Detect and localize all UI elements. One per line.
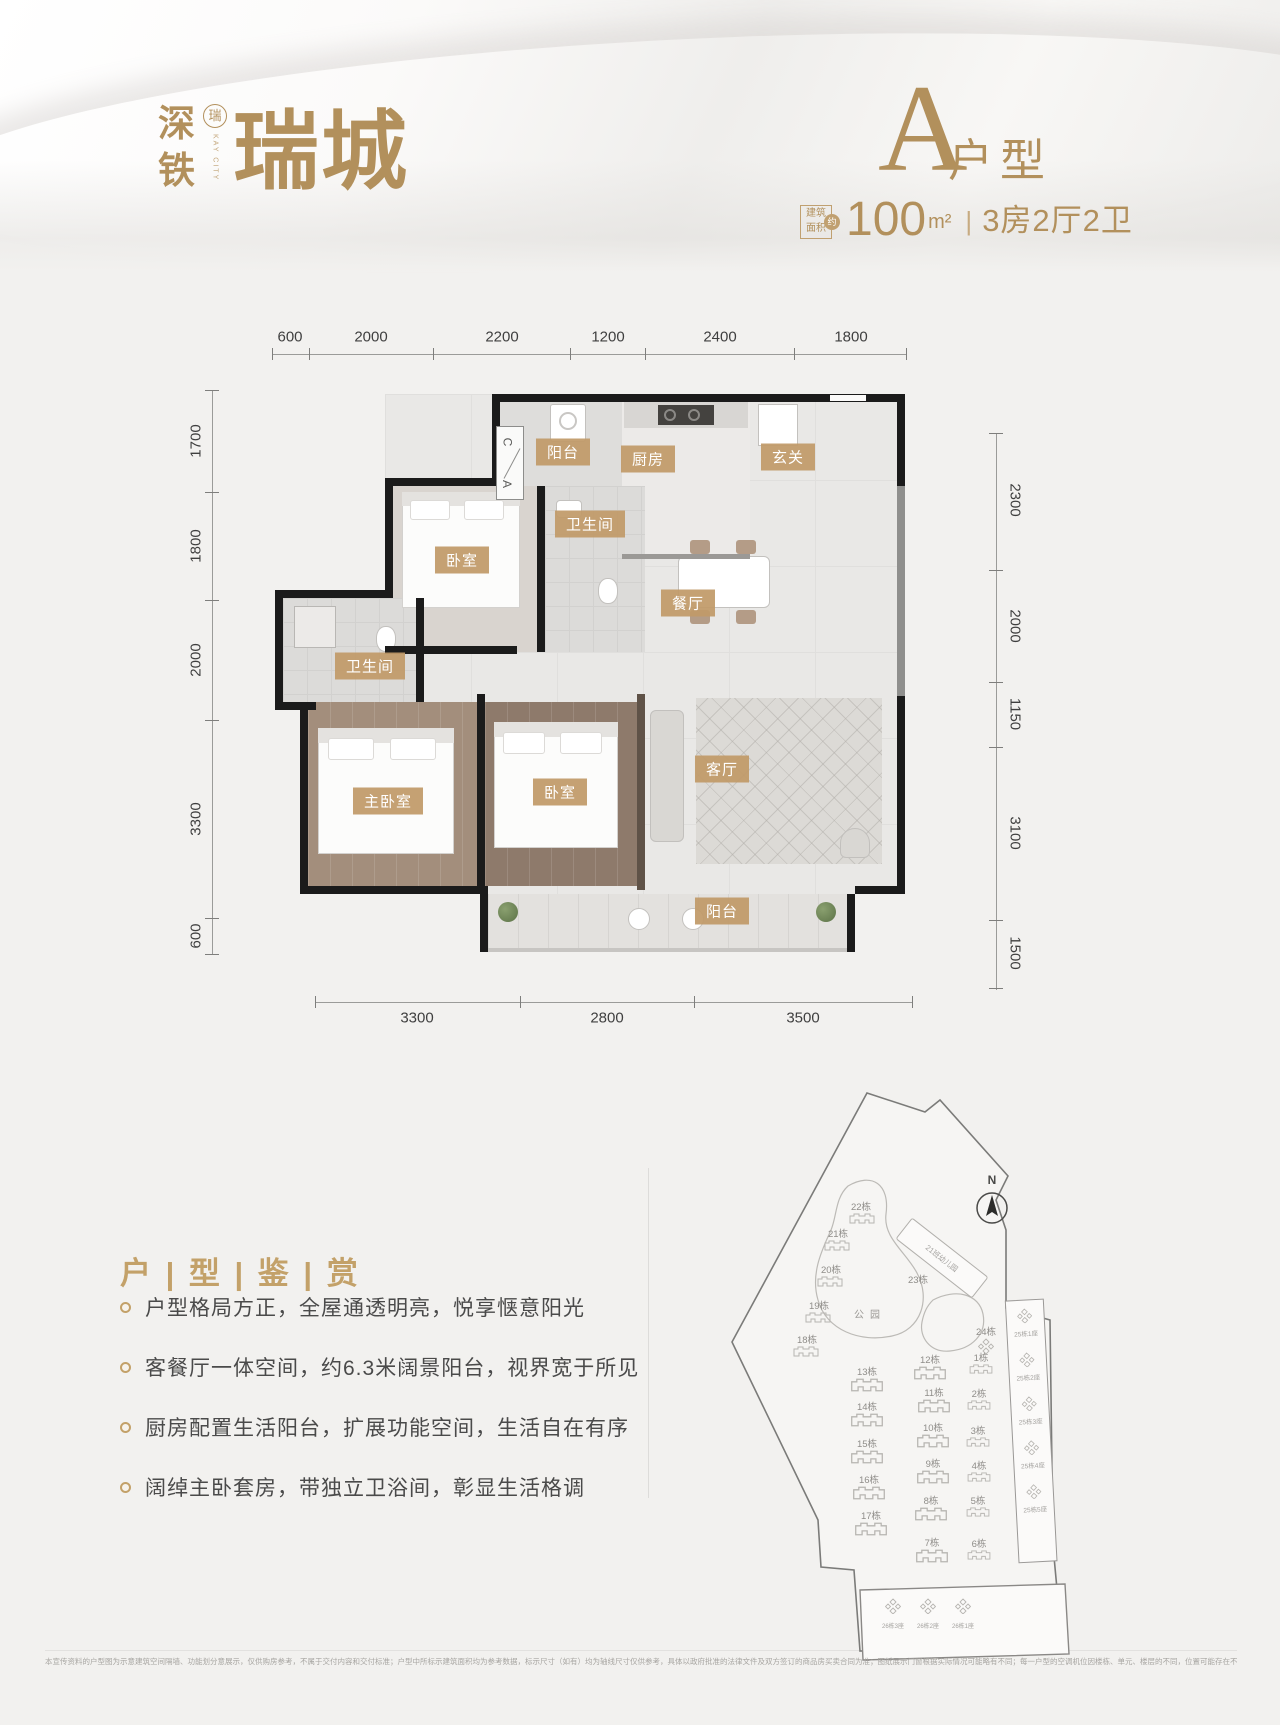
wall xyxy=(855,886,905,894)
wall-hatched xyxy=(897,486,905,696)
balcony-side-wall xyxy=(847,894,855,952)
tower-label: 2栋 xyxy=(972,1388,987,1400)
feature-text: 客餐厅一体空间，约6.3米阔景阳台，视界宽于所见 xyxy=(145,1352,639,1382)
dim-tick xyxy=(989,747,1003,748)
dim-tick xyxy=(989,988,1003,989)
dim-label: 1700 xyxy=(188,424,205,457)
dim-tick xyxy=(694,996,695,1008)
tower-label: 23栋 xyxy=(908,1274,929,1286)
room-label-kitchen: 厨房 xyxy=(621,446,675,473)
dim-tick xyxy=(989,920,1003,921)
wall xyxy=(897,696,905,886)
disclaimer-text: 本宣传资料的户型图为示意建筑空间隔墙、功能划分意展示，仅供购房参考，不属于交付内… xyxy=(45,1656,1237,1667)
pillow xyxy=(464,500,504,520)
bottom-balcony-floor xyxy=(488,894,847,948)
plant xyxy=(816,902,836,922)
logo-char-1: 深 xyxy=(158,100,195,147)
ac-shaft-marker: C A xyxy=(496,426,524,500)
dim-tick xyxy=(205,492,219,493)
logo-char-2: 铁 xyxy=(158,147,195,194)
chair xyxy=(690,540,710,554)
dim-line-left xyxy=(212,390,213,955)
entry-door-gap xyxy=(830,395,866,401)
wall xyxy=(300,702,308,894)
shaft-diagonal xyxy=(504,448,521,478)
wall xyxy=(477,694,485,890)
logo-seal-icon: 瑞 xyxy=(203,104,227,128)
tower-label: 3栋 xyxy=(971,1425,986,1437)
dim-tick xyxy=(205,720,219,721)
dim-label: 3300 xyxy=(400,1010,433,1027)
pillow xyxy=(390,738,436,760)
bullet-dot-icon xyxy=(120,1362,131,1373)
dim-label: 600 xyxy=(277,329,302,346)
brand-logo: 深 铁 瑞 KAY CITY 瑞城 xyxy=(158,100,409,218)
shaft-letter-bottom: A xyxy=(500,480,514,488)
bullet-dot-icon xyxy=(120,1302,131,1313)
tower-label: 12栋 xyxy=(920,1354,941,1366)
unit-type-suffix: 户型 xyxy=(948,124,1052,189)
chair xyxy=(736,540,756,554)
site-plan: 公园 21班幼儿园 N 22栋 21栋 20栋 19栋 18栋 23栋 13栋 … xyxy=(720,1068,1080,1673)
feature-item: 阔绰主卧套房，带独立卫浴间，彰显生活格调 xyxy=(120,1472,585,1502)
dim-tick xyxy=(433,348,434,360)
tower-label: 20栋 xyxy=(821,1264,842,1276)
dim-label: 3500 xyxy=(786,1010,819,1027)
park-label: 公园 xyxy=(854,1309,886,1321)
wall xyxy=(275,590,393,598)
dim-tick xyxy=(989,433,1003,434)
armchair xyxy=(840,828,870,858)
tower-label: 21栋 xyxy=(828,1228,849,1240)
bullet-dot-icon xyxy=(120,1422,131,1433)
sofa xyxy=(650,710,684,842)
dim-line-right xyxy=(996,433,997,990)
dim-label: 2000 xyxy=(188,643,205,676)
dim-label: 1500 xyxy=(1007,936,1024,969)
burner xyxy=(688,409,700,421)
tower-label: 9栋 xyxy=(926,1458,941,1470)
tower-label: 19栋 xyxy=(809,1300,830,1312)
tower-label: 15栋 xyxy=(857,1438,878,1450)
tower-label: 8栋 xyxy=(924,1495,939,1507)
tower-label: 16栋 xyxy=(859,1474,880,1486)
tower-label: 14栋 xyxy=(857,1401,878,1413)
dim-label: 600 xyxy=(188,923,205,948)
room-label-dining: 餐厅 xyxy=(661,590,715,617)
washer-drum xyxy=(559,412,577,430)
pillow xyxy=(560,732,602,754)
wall xyxy=(385,478,393,598)
room-label-bath-left: 卫生间 xyxy=(335,653,405,680)
dim-tick xyxy=(570,348,571,360)
wall xyxy=(537,486,545,652)
area-divider: | xyxy=(965,200,972,242)
feature-item: 户型格局方正，全屋通透明亮，悦享惬意阳光 xyxy=(120,1292,585,1322)
tower-label: 5栋 xyxy=(971,1495,986,1507)
dim-label: 2400 xyxy=(703,329,736,346)
room-label-bedroom-mid: 卧室 xyxy=(533,779,587,806)
dim-label: 2000 xyxy=(1007,609,1024,642)
dim-label: 3300 xyxy=(188,802,205,835)
dim-label: 1200 xyxy=(591,329,624,346)
tower-label: 4栋 xyxy=(972,1460,987,1472)
feature-text: 厨房配置生活阳台，扩展功能空间，生活自在有序 xyxy=(145,1412,629,1442)
dim-tick xyxy=(794,348,795,360)
dim-tick xyxy=(912,996,913,1008)
dim-label: 1800 xyxy=(834,329,867,346)
room-label-master: 主卧室 xyxy=(353,788,423,815)
chair xyxy=(736,610,756,624)
logo-english-name: KAY CITY xyxy=(212,134,219,181)
dim-tick xyxy=(205,390,219,391)
dim-tick xyxy=(989,682,1003,683)
room-label-living: 客厅 xyxy=(695,756,749,783)
balcony-railing xyxy=(488,948,847,952)
dim-tick xyxy=(315,996,316,1008)
dim-label: 2000 xyxy=(354,329,387,346)
room-label-bedroom-top: 卧室 xyxy=(435,547,489,574)
floor-plan: C A xyxy=(250,388,910,988)
wall xyxy=(300,886,488,894)
balcony-side-wall xyxy=(480,894,488,952)
tower-label: 7栋 xyxy=(925,1537,940,1549)
wall xyxy=(416,598,424,702)
dim-tick xyxy=(205,918,219,919)
dim-tick xyxy=(309,348,310,360)
tower-label: 13栋 xyxy=(857,1366,878,1378)
room-label-foyer: 玄关 xyxy=(761,444,815,471)
room-label-balcony-top: 阳台 xyxy=(536,439,590,466)
area-value: 100 xyxy=(846,198,926,242)
logo-seal-column: 瑞 KAY CITY xyxy=(203,104,227,181)
tower-label: 18栋 xyxy=(797,1334,818,1346)
tower-label: 22栋 xyxy=(851,1201,872,1213)
annex-label: 26栋1座 xyxy=(952,1622,974,1630)
foyer-cabinet xyxy=(758,404,798,446)
pillow xyxy=(410,500,450,520)
dim-tick xyxy=(906,348,907,360)
features-title: 户 | 型 | 鉴 | 赏 xyxy=(120,1248,361,1293)
dim-label: 2300 xyxy=(1007,483,1024,516)
dim-tick xyxy=(645,348,646,360)
dim-label: 2200 xyxy=(485,329,518,346)
area-approx-circle: 约 xyxy=(824,214,840,230)
wardrobe-wall xyxy=(637,694,645,890)
dim-tick xyxy=(520,996,521,1008)
wall xyxy=(275,590,283,710)
room-count-summary: 3房2厅2卫 xyxy=(982,200,1133,242)
wall xyxy=(275,702,316,710)
area-badge: 建筑 面积 约 xyxy=(800,205,832,239)
room-label-balcony-bottom: 阳台 xyxy=(695,898,749,925)
tower-label: 24栋 xyxy=(976,1326,997,1338)
dim-tick xyxy=(205,954,219,955)
feature-item: 客餐厅一体空间，约6.3米阔景阳台，视界宽于所见 xyxy=(120,1352,639,1382)
tower-label: 10栋 xyxy=(923,1422,944,1434)
kitchen-partition xyxy=(622,554,750,559)
annex-label: 26栋2座 xyxy=(917,1622,939,1630)
wall xyxy=(897,394,905,486)
annex-label: 26栋3座 xyxy=(882,1622,904,1630)
bullet-dot-icon xyxy=(120,1482,131,1493)
feature-item: 厨房配置生活阳台，扩展功能空间，生活自在有序 xyxy=(120,1412,629,1442)
compass-north-label: N xyxy=(988,1173,997,1187)
logo-left-characters: 深 铁 xyxy=(158,100,195,194)
bottom-annex: 26栋3座 26栋2座 26栋1座 xyxy=(860,1584,1069,1660)
balcony-chair xyxy=(628,908,650,930)
area-unit: m² xyxy=(928,202,951,242)
burner xyxy=(664,409,676,421)
toilet xyxy=(598,578,618,604)
feature-text: 阔绰主卧套房，带独立卫浴间，彰显生活格调 xyxy=(145,1472,585,1502)
tower-label: 17栋 xyxy=(861,1510,882,1522)
dim-tick xyxy=(205,600,219,601)
dim-line-bottom xyxy=(315,1002,913,1003)
tower-label: 6栋 xyxy=(972,1538,987,1550)
dim-label: 1800 xyxy=(188,529,205,562)
dim-tick xyxy=(272,348,273,360)
vertical-divider xyxy=(648,1168,649,1498)
wall xyxy=(385,478,500,486)
dim-tick xyxy=(989,570,1003,571)
logo-main-name: 瑞城 xyxy=(233,100,409,204)
tower-label: 11栋 xyxy=(924,1387,944,1399)
plant xyxy=(498,902,518,922)
dim-label: 1150 xyxy=(1007,698,1024,730)
room-label-bath-top: 卫生间 xyxy=(555,511,625,538)
dim-label: 2800 xyxy=(590,1010,623,1027)
dim-label: 3100 xyxy=(1007,816,1024,849)
feature-text: 户型格局方正，全屋通透明亮，悦享惬意阳光 xyxy=(145,1292,585,1322)
shower xyxy=(294,606,336,648)
pillow xyxy=(503,732,545,754)
unit-area-row: 建筑 面积 约 100 m² | 3房2厅2卫 xyxy=(800,196,1133,242)
dim-line-top xyxy=(272,354,906,355)
shaft-letter-top: C xyxy=(500,438,514,447)
pillow xyxy=(328,738,374,760)
tower-label: 1栋 xyxy=(974,1352,989,1364)
